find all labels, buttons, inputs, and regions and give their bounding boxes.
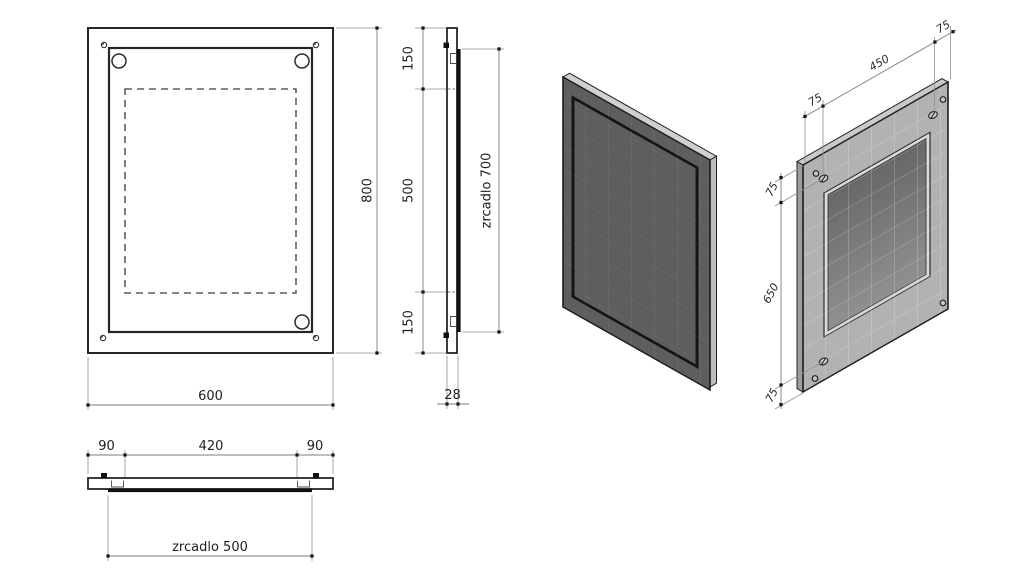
iso-front-face-group — [563, 77, 710, 390]
bottom-mirror-width-dimension: zrcadlo 500 — [106, 495, 313, 561]
bottom-frame-profile — [88, 478, 333, 489]
iso-back-face-group — [803, 82, 948, 392]
side-middle-segment-label: 500 — [401, 178, 416, 203]
side-view: 150 500 150 zrcadlo 700 28 — [401, 26, 504, 409]
bottom-right-segment-label: 90 — [307, 439, 324, 454]
iso-back-grid — [804, 83, 947, 390]
side-thickness-dimension: 28 — [437, 356, 469, 409]
bottom-view: 90 420 90 zrcadlo 500 — [86, 439, 334, 561]
iso-front-right-edge — [710, 156, 717, 387]
side-bottom-segment-label: 150 — [401, 310, 416, 335]
side-mirror-height-label: zrcadlo 700 — [479, 153, 494, 229]
iso-hole-span-label: 450 — [867, 52, 892, 74]
front-width-dimension: 600 — [86, 357, 334, 410]
front-mirror-outline — [109, 48, 312, 332]
iso-offset-side-bottom-label: 75 — [763, 386, 781, 404]
bottom-left-segment-label: 90 — [98, 439, 115, 454]
bottom-mirror-glass — [108, 489, 312, 493]
iso-back-left-edge — [797, 162, 803, 392]
screw-hole-icon — [940, 97, 946, 103]
screw-hole-icon — [812, 376, 818, 382]
bottom-hanger-clip-right — [313, 473, 319, 479]
front-width-label: 600 — [198, 389, 223, 404]
front-height-label: 800 — [361, 178, 376, 203]
bottom-segment-dimensions: 90 420 90 — [86, 439, 334, 477]
iso-back-view: 75 450 75 75 650 75 — [760, 18, 956, 409]
bottom-center-segment-label: 420 — [199, 439, 224, 454]
iso-hole-span-side-label: 650 — [760, 281, 781, 306]
front-view: 600 800 — [86, 26, 382, 410]
bottom-mirror-width-label: zrcadlo 500 — [172, 540, 248, 555]
technical-drawing-page: 600 800 150 500 150 — [0, 0, 1024, 579]
iso-front-grid — [564, 78, 709, 388]
screw-hole-icon — [940, 300, 946, 306]
side-segment-dimensions: 150 500 150 — [401, 26, 446, 354]
screw-hole-icon — [813, 171, 819, 177]
side-mirror-glass — [457, 49, 461, 332]
side-mirror-height-dimension: zrcadlo 700 — [462, 47, 504, 333]
side-top-segment-label: 150 — [401, 46, 416, 71]
iso-offset-side-top-label: 75 — [763, 180, 781, 198]
iso-front-view — [563, 73, 717, 390]
bottom-hanger-clip-left — [101, 473, 107, 479]
side-thickness-label: 28 — [444, 388, 461, 403]
side-hanger-clip-top — [444, 43, 450, 49]
side-hanger-clip-bottom — [444, 333, 450, 339]
side-frame-profile — [447, 28, 457, 353]
front-height-dimension: 800 — [336, 26, 382, 354]
mirror-technical-drawing: 600 800 150 500 150 — [0, 0, 1024, 579]
